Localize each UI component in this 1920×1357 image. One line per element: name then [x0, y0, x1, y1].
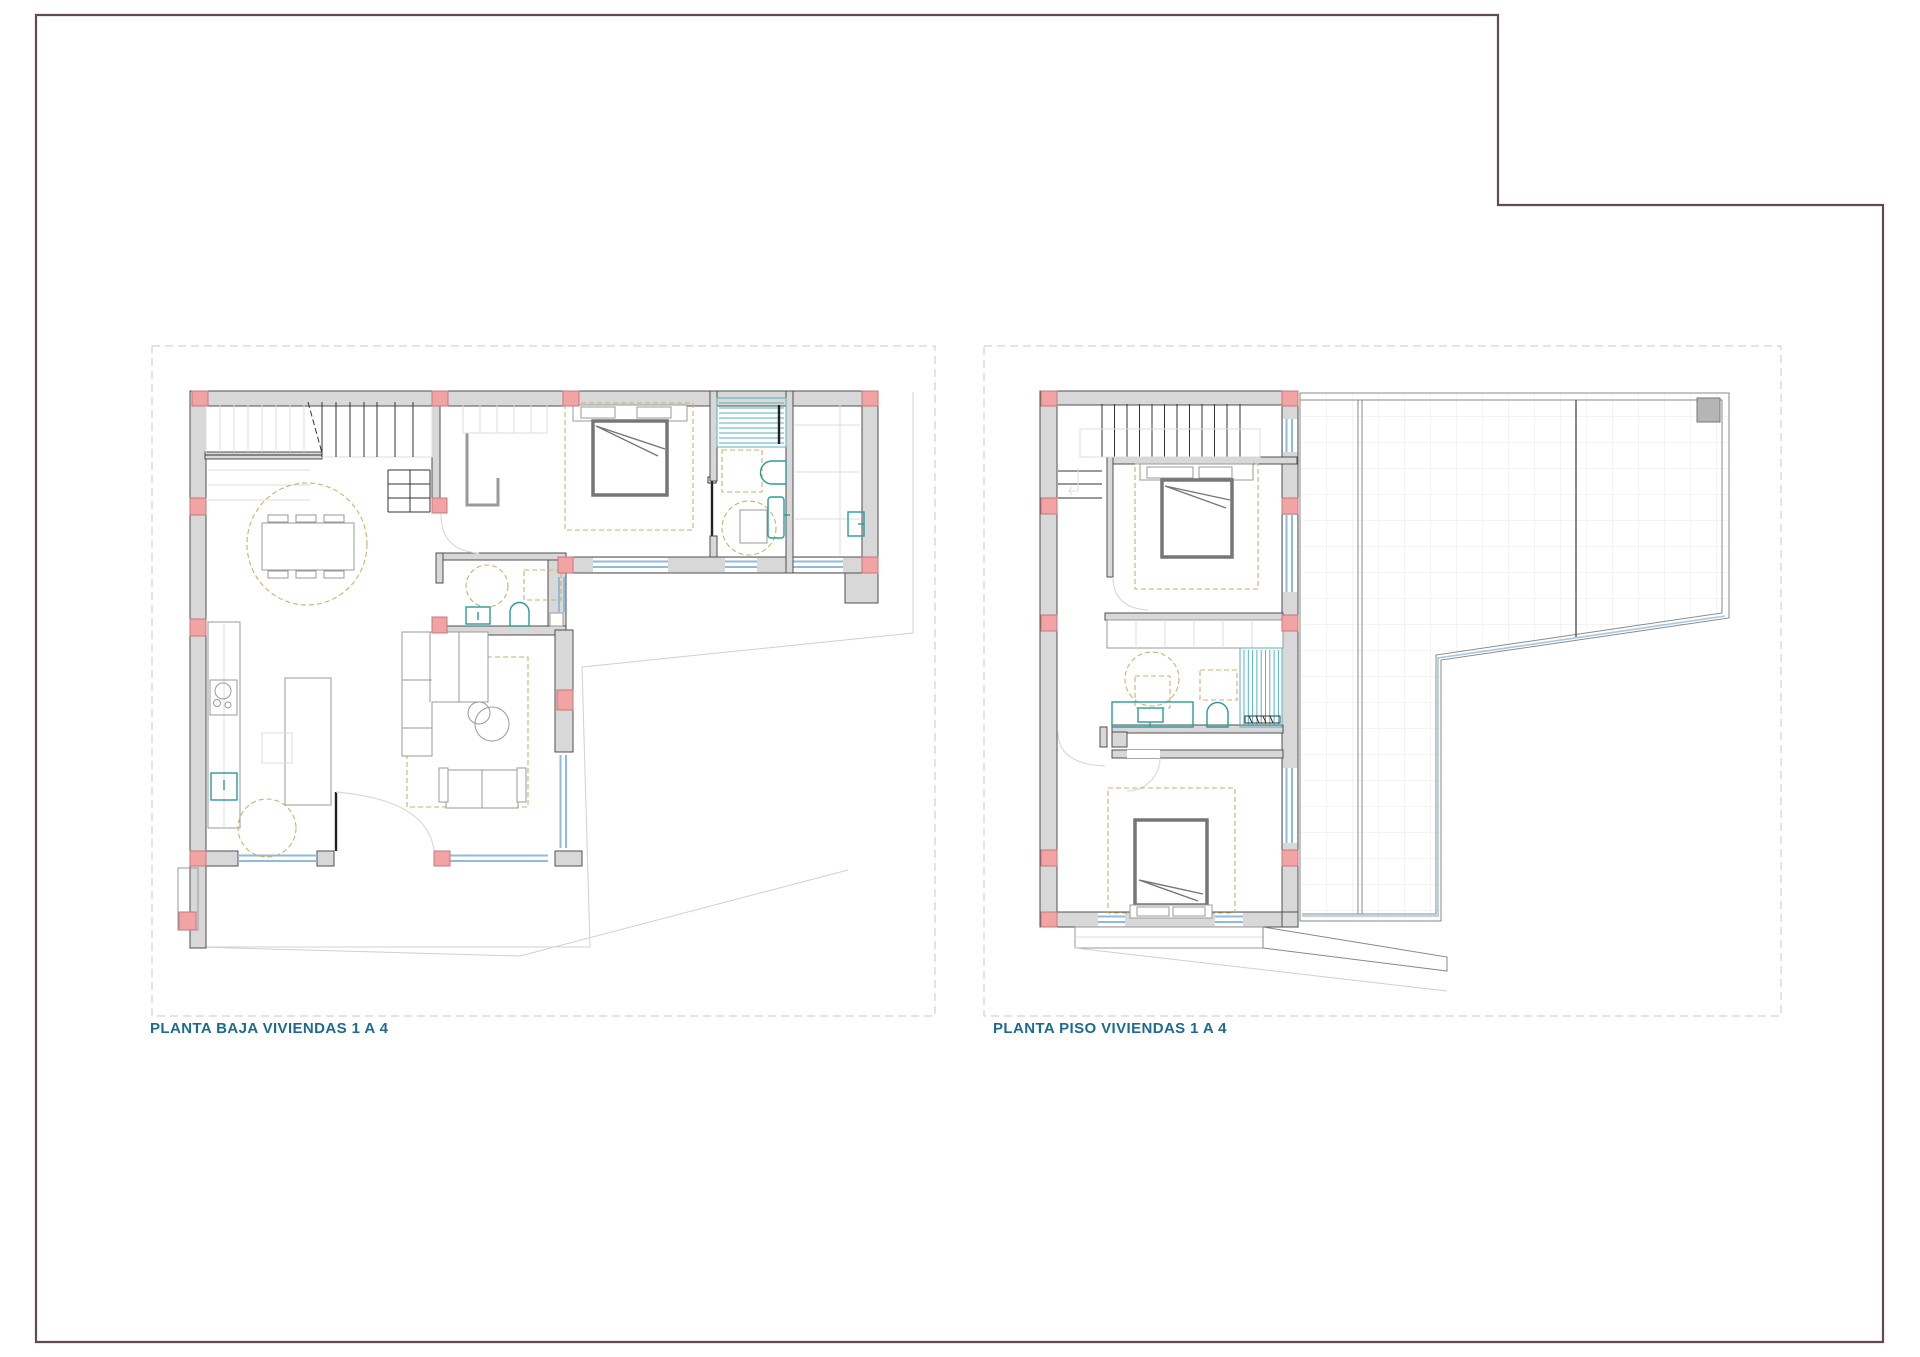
dining-area — [247, 483, 367, 605]
ground-floor-plan — [152, 346, 935, 1016]
bathroom-ground — [717, 398, 790, 555]
bedroom-upper-1 — [1113, 464, 1258, 610]
wc-ground — [466, 565, 561, 626]
kitchen — [208, 622, 331, 857]
living-room — [336, 514, 528, 851]
bedroom-upper-2 — [1108, 788, 1235, 918]
walls-ground — [178, 391, 878, 948]
upper-floor-plan — [984, 346, 1781, 1016]
bathroom-upper — [1058, 648, 1282, 791]
wardrobe-band — [1107, 620, 1283, 648]
chimney-column — [1697, 398, 1720, 422]
terrace — [1300, 393, 1729, 921]
staircase-ground — [205, 402, 547, 512]
entry-steps — [1075, 927, 1447, 991]
floor-plan-drawing — [0, 0, 1920, 1357]
sheet: PLANTA BAJA VIVIENDAS 1 A 4 PLANTA PISO … — [0, 0, 1920, 1357]
ground-floor-plan-title: PLANTA BAJA VIVIENDAS 1 A 4 — [150, 1020, 388, 1037]
upper-floor-plan-title: PLANTA PISO VIVIENDAS 1 A 4 — [993, 1020, 1227, 1037]
sheet-frame-left — [152, 346, 935, 1016]
closet-room-ground — [795, 402, 864, 555]
